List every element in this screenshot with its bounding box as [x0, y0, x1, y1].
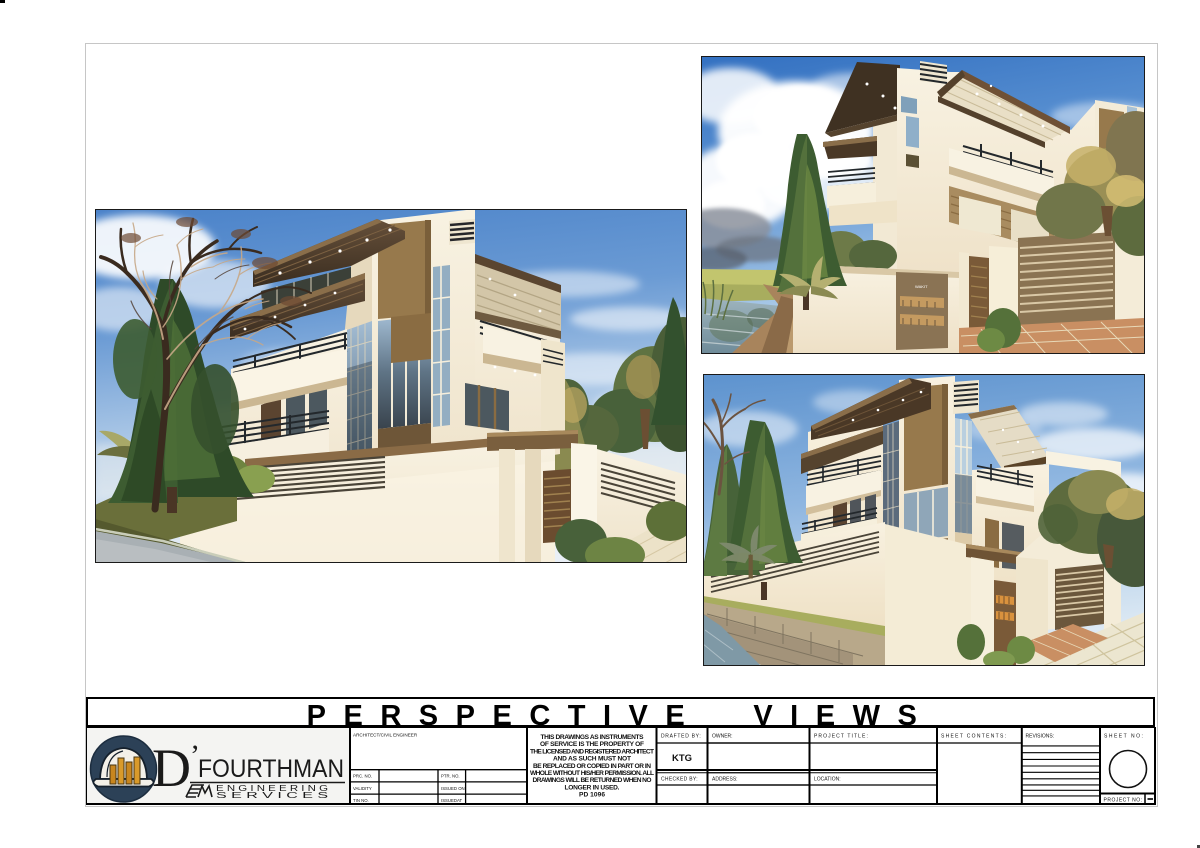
svg-text:REVISIONS:: REVISIONS: [1026, 734, 1055, 740]
svg-text:CHECKED BY:: CHECKED BY: [661, 777, 698, 783]
svg-text:VALIDITY: VALIDITY [353, 786, 372, 791]
svg-text:PTR. NO.: PTR. NO. [441, 774, 460, 779]
svg-text:FOURTHMAN: FOURTHMAN [198, 755, 344, 783]
svg-text:LOCATION:: LOCATION: [814, 777, 841, 783]
svg-text:SHEET CONTENTS:: SHEET CONTENTS: [941, 734, 1007, 740]
svg-text:LONGER IN USED.: LONGER IN USED. [565, 784, 620, 791]
svg-text:OF SERVICE IS THE PROPERTY OF: OF SERVICE IS THE PROPERTY OF [540, 741, 644, 748]
svg-text:AND AS SUCH MUST NOT: AND AS SUCH MUST NOT [553, 756, 631, 763]
svg-text:ISSUEDAT: ISSUEDAT [441, 798, 463, 803]
svg-text:THIS DRAWINGS AS INSTRUMENTS: THIS DRAWINGS AS INSTRUMENTS [541, 734, 645, 741]
svg-text:DRAFTED BY:: DRAFTED BY: [661, 734, 701, 740]
svg-text:TIN NO.: TIN NO. [353, 798, 369, 803]
svg-text:S E R V I C E S: S E R V I C E S [216, 791, 328, 800]
svg-text:ARCHITECT/CIVIL ENGINEER: ARCHITECT/CIVIL ENGINEER [353, 733, 418, 738]
svg-text:PROJECT NO:: PROJECT NO: [1104, 798, 1143, 804]
svg-text:THE LICENSED AND REGISTERED AR: THE LICENSED AND REGISTERED ARCHITECT [530, 748, 654, 755]
svg-text:WHOLE WITHOUT HIS/HER PERMISSI: WHOLE WITHOUT HIS/HER PERMISSION. ALL [530, 770, 654, 777]
svg-text:WAKIT: WAKIT [915, 284, 928, 289]
svg-text:SHEET NO:: SHEET NO: [1104, 734, 1144, 740]
svg-text:ISSUED ON: ISSUED ON [441, 786, 465, 791]
svg-text:ADDRESS:: ADDRESS: [712, 777, 738, 783]
svg-text:OWNER:: OWNER: [712, 734, 733, 740]
svg-text:PD 1096: PD 1096 [579, 792, 605, 799]
svg-text:PROJECT TITLE:: PROJECT TITLE: [814, 734, 869, 740]
svg-text:PRC. NO.: PRC. NO. [353, 774, 372, 779]
svg-text:D: D [152, 738, 191, 798]
svg-text:BE REPLACED OR COPIED IN PART: BE REPLACED OR COPIED IN PART OR IN [533, 763, 651, 770]
svg-text:KTG: KTG [672, 753, 692, 764]
svg-text:DRAWINGS WILL BE RETURNED WHEN: DRAWINGS WILL BE RETURNED WHEN NO [533, 777, 652, 784]
